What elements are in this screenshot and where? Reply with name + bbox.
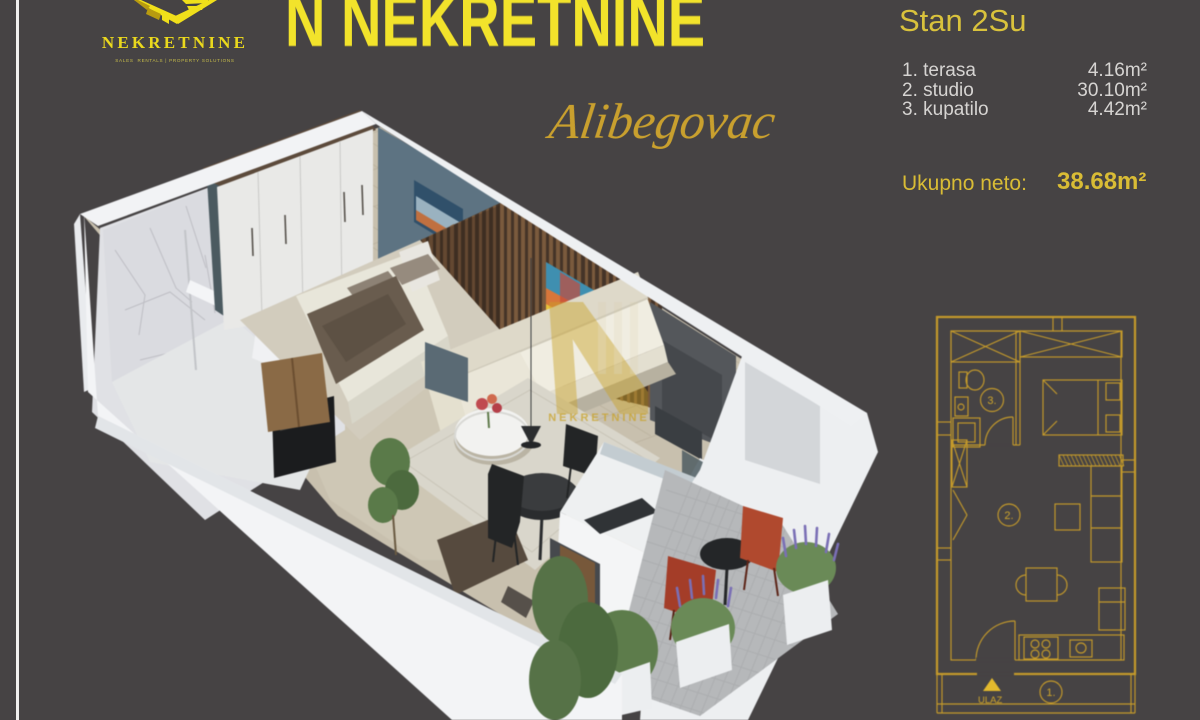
svg-text:2.: 2. [1004,510,1013,522]
svg-text:3.: 3. [987,395,996,407]
svg-text:ULAZ: ULAZ [978,695,1002,706]
svg-text:1.: 1. [1046,687,1055,699]
svg-text:NEKRETNINE: NEKRETNINE [548,412,650,424]
